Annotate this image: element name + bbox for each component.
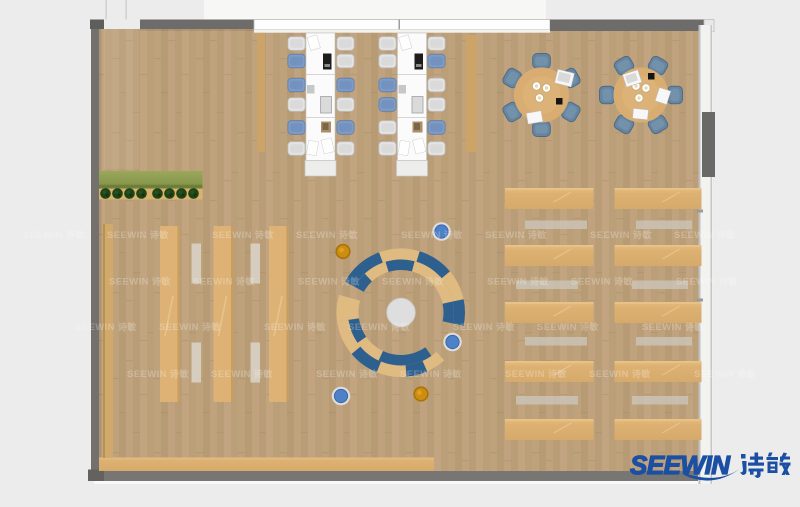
svg-text:SEEWIN 诗敏: SEEWIN 诗敏 [589, 368, 651, 380]
svg-text:SEEWIN 诗敏: SEEWIN 诗敏 [400, 368, 462, 380]
svg-text:SEEWIN 诗敏: SEEWIN 诗敏 [75, 321, 137, 333]
svg-text:SEEWIN 诗敏: SEEWIN 诗敏 [316, 368, 378, 380]
svg-text:SEEWIN 诗敏: SEEWIN 诗敏 [453, 321, 515, 333]
svg-text:SEEWIN 诗敏: SEEWIN 诗敏 [211, 368, 273, 380]
svg-text:SEEWIN 诗敏: SEEWIN 诗敏 [296, 229, 358, 241]
svg-text:SEEWIN 诗敏: SEEWIN 诗敏 [159, 321, 221, 333]
svg-text:SEEWIN 诗敏: SEEWIN 诗敏 [505, 368, 567, 380]
svg-text:SEEWIN 诗敏: SEEWIN 诗敏 [193, 276, 255, 288]
svg-text:SEEWIN 诗敏: SEEWIN 诗敏 [401, 229, 463, 241]
svg-text:SEEWIN 诗敏: SEEWIN 诗敏 [694, 368, 756, 380]
svg-text:SEEWIN 诗敏: SEEWIN 诗敏 [485, 229, 547, 241]
svg-text:SEEWIN 诗敏: SEEWIN 诗敏 [487, 276, 549, 288]
svg-text:SEEWIN 诗敏: SEEWIN 诗敏 [590, 229, 652, 241]
svg-text:SEEWIN 诗敏: SEEWIN 诗敏 [571, 276, 633, 288]
svg-text:SEEWIN 诗敏: SEEWIN 诗敏 [348, 321, 410, 333]
svg-text:SEEWIN: SEEWIN [630, 450, 731, 480]
svg-text:SEEWIN 诗敏: SEEWIN 诗敏 [674, 229, 736, 241]
svg-text:SEEWIN 诗敏: SEEWIN 诗敏 [642, 321, 704, 333]
svg-text:SEEWIN 诗敏: SEEWIN 诗敏 [23, 229, 85, 241]
svg-text:SEEWIN 诗敏: SEEWIN 诗敏 [537, 321, 599, 333]
svg-text:SEEWIN 诗敏: SEEWIN 诗敏 [298, 276, 360, 288]
svg-text:SEEWIN 诗敏: SEEWIN 诗敏 [676, 276, 738, 288]
svg-text:SEEWIN 诗敏: SEEWIN 诗敏 [127, 368, 189, 380]
svg-text:SEEWIN 诗敏: SEEWIN 诗敏 [264, 321, 326, 333]
svg-text:SEEWIN 诗敏: SEEWIN 诗敏 [107, 229, 169, 241]
svg-text:SEEWIN 诗敏: SEEWIN 诗敏 [382, 276, 444, 288]
svg-text:SEEWIN 诗敏: SEEWIN 诗敏 [109, 276, 171, 288]
svg-text:SEEWIN 诗敏: SEEWIN 诗敏 [212, 229, 274, 241]
